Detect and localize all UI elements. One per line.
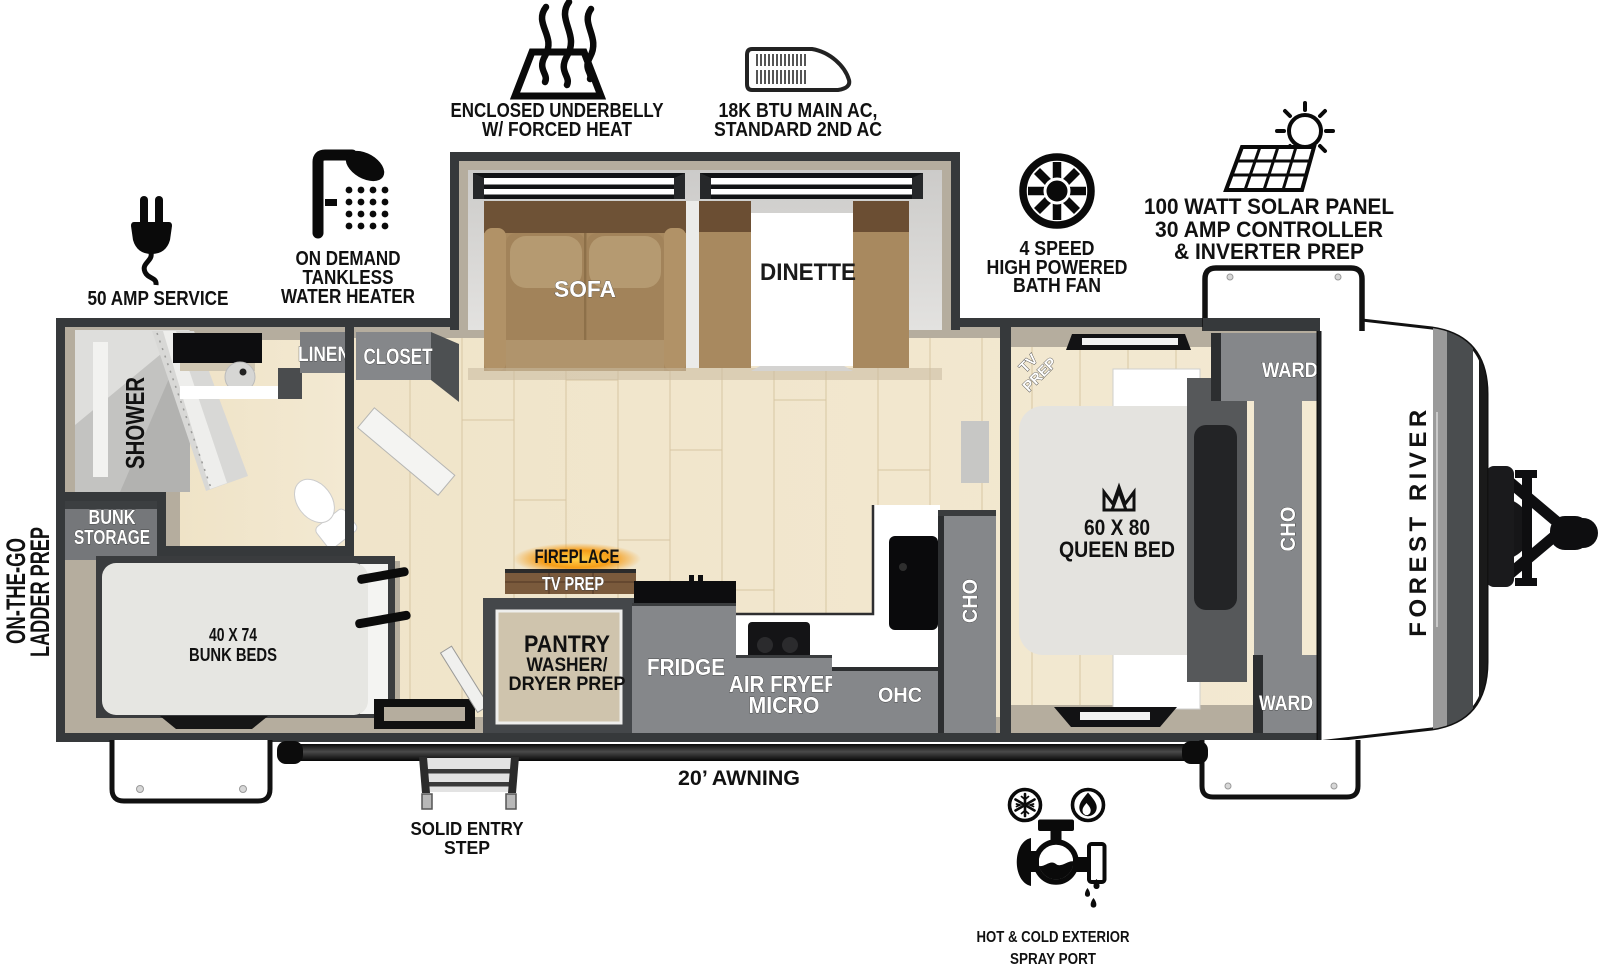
svg-text:MICRO: MICRO xyxy=(749,692,820,718)
svg-text:OHC: OHC xyxy=(878,684,922,707)
svg-text:STANDARD 2ND AC: STANDARD 2ND AC xyxy=(714,119,882,141)
svg-text:& INVERTER PREP: & INVERTER PREP xyxy=(1174,239,1364,264)
svg-text:20’ AWNING: 20’ AWNING xyxy=(678,767,800,790)
svg-text:TV PREP: TV PREP xyxy=(542,573,604,594)
svg-text:BATH FAN: BATH FAN xyxy=(1013,275,1101,297)
svg-text:WATER HEATER: WATER HEATER xyxy=(281,286,415,308)
svg-text:BUNK: BUNK xyxy=(89,507,136,529)
svg-text:40 X 74: 40 X 74 xyxy=(209,624,258,645)
svg-text:W/ FORCED HEAT: W/ FORCED HEAT xyxy=(482,119,632,141)
svg-text:FOREST RIVER: FOREST RIVER xyxy=(1405,405,1432,636)
svg-text:DRYER PREP: DRYER PREP xyxy=(509,674,626,695)
svg-text:FIREPLACE: FIREPLACE xyxy=(535,546,620,568)
svg-text:BUNK BEDS: BUNK BEDS xyxy=(189,644,277,665)
svg-text:QUEEN BED: QUEEN BED xyxy=(1059,537,1175,562)
svg-text:STEP: STEP xyxy=(444,838,490,858)
svg-text:SPRAY PORT: SPRAY PORT xyxy=(1010,951,1096,968)
svg-text:LADDER PREP: LADDER PREP xyxy=(25,527,55,657)
svg-text:SOFA: SOFA xyxy=(554,276,616,302)
svg-text:WARD: WARD xyxy=(1259,692,1313,715)
svg-text:HOT & COLD EXTERIOR: HOT & COLD EXTERIOR xyxy=(977,929,1130,946)
svg-text:100 WATT SOLAR PANEL: 100 WATT SOLAR PANEL xyxy=(1144,194,1394,219)
svg-text:FRIDGE: FRIDGE xyxy=(647,654,725,680)
svg-text:50 AMP SERVICE: 50 AMP SERVICE xyxy=(88,288,229,310)
svg-text:WARD: WARD xyxy=(1262,359,1318,382)
svg-text:SOLID ENTRY: SOLID ENTRY xyxy=(411,819,524,839)
svg-text:WASHER/: WASHER/ xyxy=(527,655,609,676)
svg-text:SHOWER: SHOWER xyxy=(120,377,150,469)
svg-text:CHO: CHO xyxy=(1277,507,1300,552)
svg-text:STORAGE: STORAGE xyxy=(74,527,150,549)
svg-text:CHO: CHO xyxy=(959,579,982,623)
svg-text:PANTRY: PANTRY xyxy=(524,631,610,658)
svg-text:CLOSET: CLOSET xyxy=(364,344,433,369)
svg-text:DINETTE: DINETTE xyxy=(760,259,856,286)
svg-text:LINEN: LINEN xyxy=(298,343,350,366)
